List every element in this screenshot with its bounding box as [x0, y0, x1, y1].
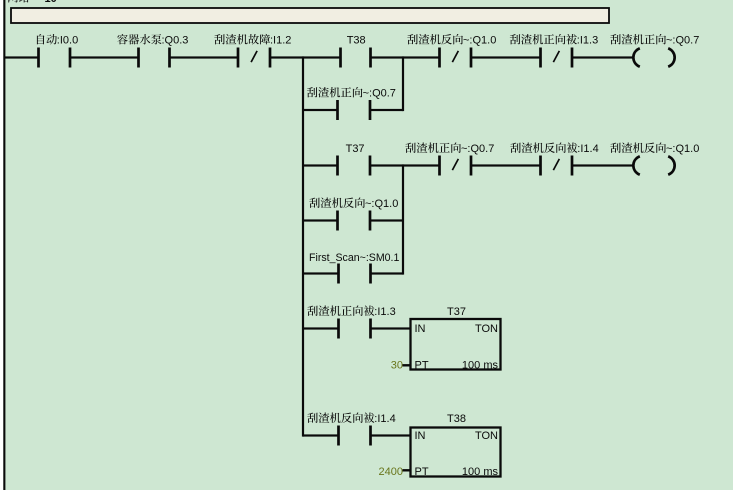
svg-text:PT: PT [415, 466, 429, 478]
svg-text:T37: T37 [447, 306, 466, 318]
svg-text:TON: TON [475, 430, 498, 442]
svg-text::I0.0: :I0.0 [57, 35, 78, 47]
svg-text::I1.2: :I1.2 [270, 35, 291, 47]
svg-text::Q0.3: :Q0.3 [162, 35, 189, 47]
svg-text:~:Q1.0: ~:Q1.0 [365, 198, 398, 210]
svg-text:30: 30 [391, 360, 403, 372]
svg-text::I1.4: :I1.4 [577, 143, 598, 155]
svg-text:2400: 2400 [379, 466, 403, 478]
svg-text:T37: T37 [346, 143, 365, 155]
svg-text:First_Scan~:SM0.1: First_Scan~:SM0.1 [309, 252, 399, 264]
svg-text:TON: TON [475, 323, 498, 335]
svg-text:~:Q0.7: ~:Q0.7 [666, 35, 699, 47]
svg-text:PT: PT [415, 360, 429, 372]
svg-text:100 ms: 100 ms [462, 466, 499, 478]
svg-text:IN: IN [415, 430, 426, 442]
svg-text:IN: IN [415, 323, 426, 335]
svg-text:10: 10 [45, 0, 57, 5]
svg-text:~:Q0.7: ~:Q0.7 [461, 143, 494, 155]
svg-text:~:Q1.0: ~:Q1.0 [666, 143, 699, 155]
svg-text::I1.4: :I1.4 [374, 413, 395, 425]
svg-text:T38: T38 [447, 413, 466, 425]
svg-text::I1.3: :I1.3 [577, 35, 598, 47]
svg-text:T38: T38 [347, 35, 366, 47]
svg-text:~:Q1.0: ~:Q1.0 [463, 35, 496, 47]
svg-text::I1.3: :I1.3 [374, 306, 395, 318]
svg-text:100 ms: 100 ms [462, 360, 499, 372]
svg-text:~:Q0.7: ~:Q0.7 [363, 88, 396, 100]
